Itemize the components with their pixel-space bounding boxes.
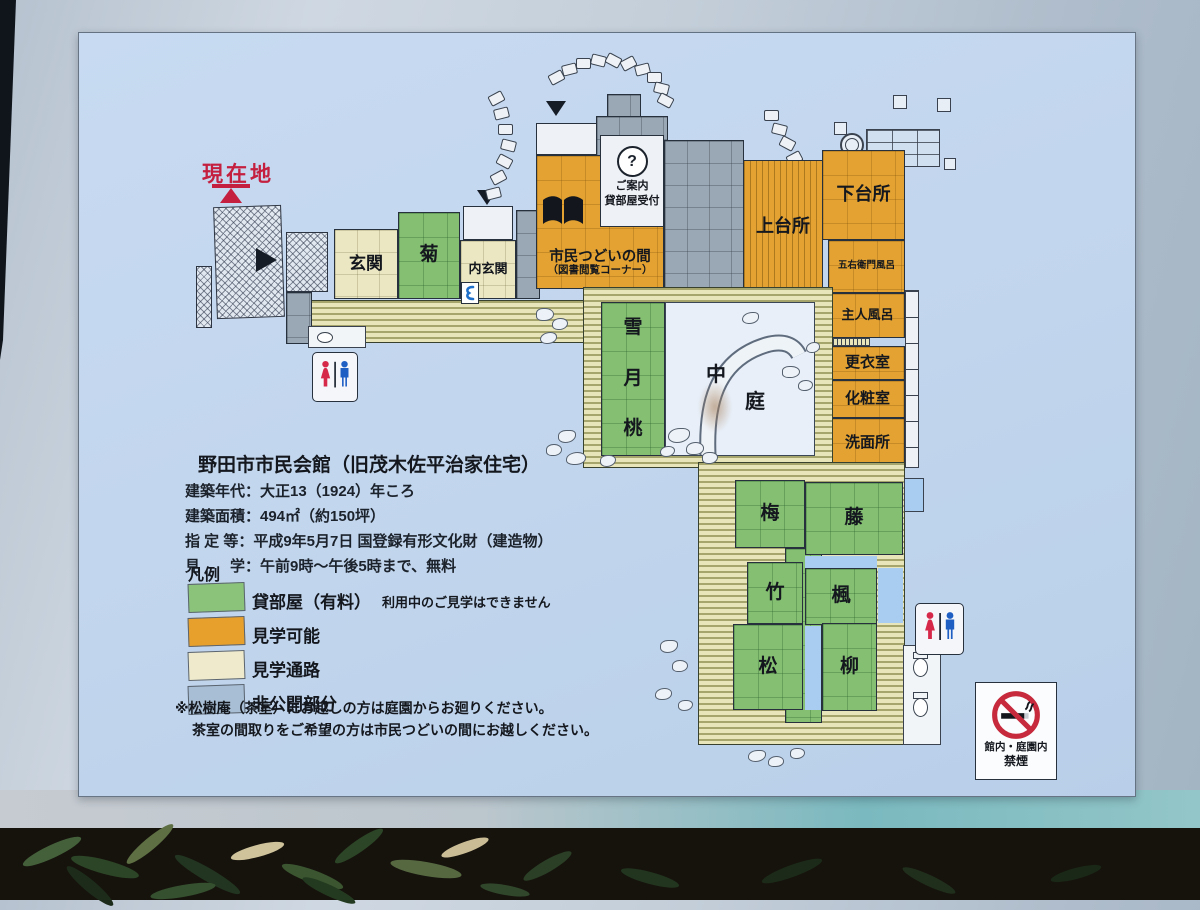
room-take: 竹	[747, 562, 803, 624]
entrance-arrow-icon	[546, 101, 566, 116]
room-goemonburo: 五右衛門風呂	[828, 240, 905, 293]
reception-line1: ご案内	[616, 180, 649, 192]
room-genkan: 玄関	[334, 229, 398, 299]
garden-stone	[834, 122, 847, 135]
garden-stone	[944, 158, 956, 170]
note-line-2: 茶室の間取りをご希望の方は市民つどいの間にお越しください。	[192, 720, 598, 740]
toilet-room	[903, 645, 941, 745]
step	[832, 338, 870, 346]
entrance-arrow-icon	[256, 248, 277, 272]
photo-background-edge	[0, 0, 18, 360]
info-line-area: 建築面積：494㎡（約150坪）	[185, 505, 553, 526]
sign-title: 野田市市民会館（旧茂木佐平治家住宅）	[198, 450, 540, 477]
restroom-icon	[312, 352, 358, 402]
stepping-stone	[576, 58, 591, 69]
legend-note-rental: 利用中のご見学はできません	[382, 592, 551, 611]
room-kaede: 楓	[805, 568, 877, 625]
entrance-vestibule	[536, 123, 600, 155]
info-line-hours: 見 学：午前9時～午後5時まで、無料	[185, 555, 553, 576]
garden-stone	[768, 756, 784, 767]
no-smoking-sign: 館内・庭園内 禁煙	[975, 682, 1057, 780]
no-smoking-icon	[988, 689, 1044, 741]
room-keshoshitsu: 化粧室	[830, 380, 905, 418]
approach-path	[286, 232, 328, 292]
courtyard-label-1: 中	[706, 358, 726, 387]
stepping-stone	[498, 124, 513, 135]
room-kamidaidokoro: 上台所	[743, 160, 823, 293]
legend-title: 凡例	[188, 561, 220, 585]
room-shujinburo: 主人風呂	[830, 293, 905, 338]
rooms-yuki-tsuki-momo: 雪 月 桃	[601, 302, 665, 456]
approach-path	[196, 266, 212, 328]
annex	[904, 478, 924, 512]
stepping-stone	[764, 110, 779, 121]
legend-chip-rental	[188, 582, 246, 613]
building-info: 建築年代：大正13（1924）年ころ 建築面積：494㎡（約150坪） 指 定 …	[185, 480, 553, 576]
no-smoking-line2: 禁煙	[1004, 754, 1028, 769]
open-gap	[805, 556, 877, 568]
legend-label-corridor: 見学通路	[252, 656, 320, 681]
info-line-era: 建築年代：大正13（1924）年ころ	[185, 480, 553, 501]
restroom-icon	[915, 603, 964, 655]
garden-stone	[893, 95, 907, 109]
note-line-1: ※松樹庵（茶室）にお越しの方は庭園からお廻りください。	[175, 698, 553, 718]
room-ume: 梅	[735, 480, 805, 548]
legend-label-viewable: 見学可能	[252, 622, 320, 647]
information-icon: ?	[617, 146, 648, 177]
reception-box: ? ご案内 貸部屋受付	[600, 135, 664, 227]
legend-chip-corridor	[188, 650, 246, 681]
current-location-triangle-icon	[220, 188, 242, 203]
courtyard-label-2: 庭	[745, 385, 765, 414]
room-momo-label: 桃	[623, 419, 642, 440]
reception-line2: 貸部屋受付	[605, 195, 660, 207]
room-fuji: 藤	[805, 482, 903, 555]
garden-stone	[937, 98, 951, 112]
garden-stone	[686, 442, 704, 455]
service-corridor	[905, 290, 919, 468]
room-koishitsu: 更衣室	[830, 346, 905, 380]
room-matsu: 松	[733, 624, 803, 710]
room-shimodaidokoro: 下台所	[822, 150, 905, 240]
legend-label-rental: 貸部屋（有料）	[252, 588, 371, 613]
open-gap	[805, 626, 821, 710]
room-kiku: 菊	[398, 212, 460, 299]
legend-chip-viewable	[188, 616, 246, 647]
room-yanagi: 柳	[822, 623, 877, 711]
room-yuki-label: 雪	[623, 318, 642, 339]
book-icon	[540, 194, 586, 228]
room-tsuki-label: 月	[623, 369, 642, 390]
private-area	[607, 94, 641, 118]
toilet-fixture	[308, 326, 366, 348]
room-senmenjo: 洗面所	[830, 418, 905, 468]
no-smoking-line1: 館内・庭園内	[985, 741, 1048, 754]
public-phone-icon	[461, 282, 479, 304]
info-line-designation: 指 定 等：平成9年5月7日 国登録有形文化財（建造物）	[185, 530, 553, 551]
stain	[698, 381, 732, 433]
entrance-vestibule	[463, 206, 513, 240]
private-area	[664, 140, 744, 290]
room-tsudoi-sublabel: （図書閲覧コーナー）	[536, 262, 664, 277]
photo-of-guide-sign: { "sign": { "current_location": "現在地", "…	[0, 0, 1200, 900]
open-gap	[878, 568, 903, 623]
